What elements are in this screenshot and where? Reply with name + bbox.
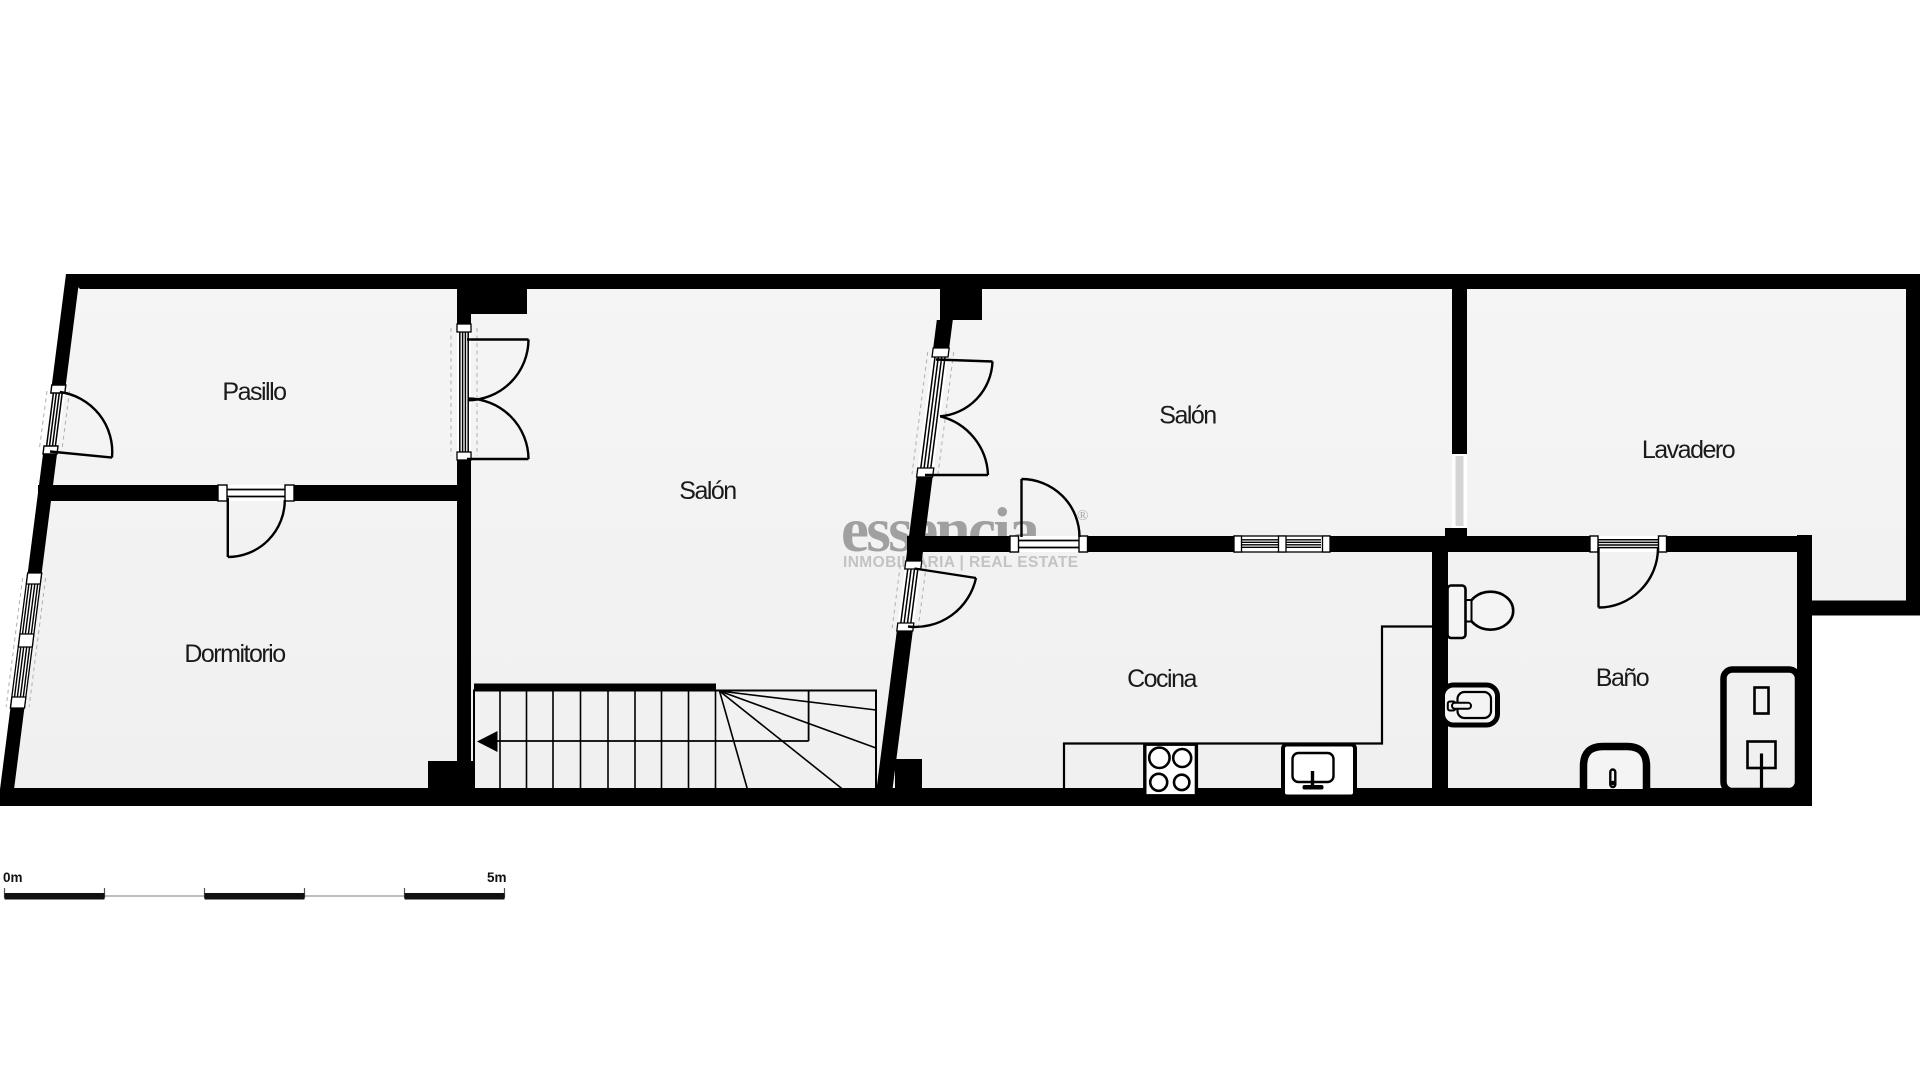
svg-text:Pasillo: Pasillo [222, 378, 286, 406]
svg-text:INMOBILIARIA | REAL ESTATE: INMOBILIARIA | REAL ESTATE [843, 554, 1078, 571]
svg-text:Dormitorio: Dormitorio [184, 640, 285, 668]
svg-text:Lavadero: Lavadero [1642, 436, 1735, 464]
svg-text:Salón: Salón [1159, 402, 1216, 430]
svg-text:Baño: Baño [1596, 664, 1649, 692]
svg-text:5m: 5m [487, 870, 507, 885]
svg-text:0m: 0m [3, 870, 23, 885]
svg-text:Salón: Salón [679, 477, 736, 505]
svg-text:Cocina: Cocina [1127, 665, 1197, 693]
